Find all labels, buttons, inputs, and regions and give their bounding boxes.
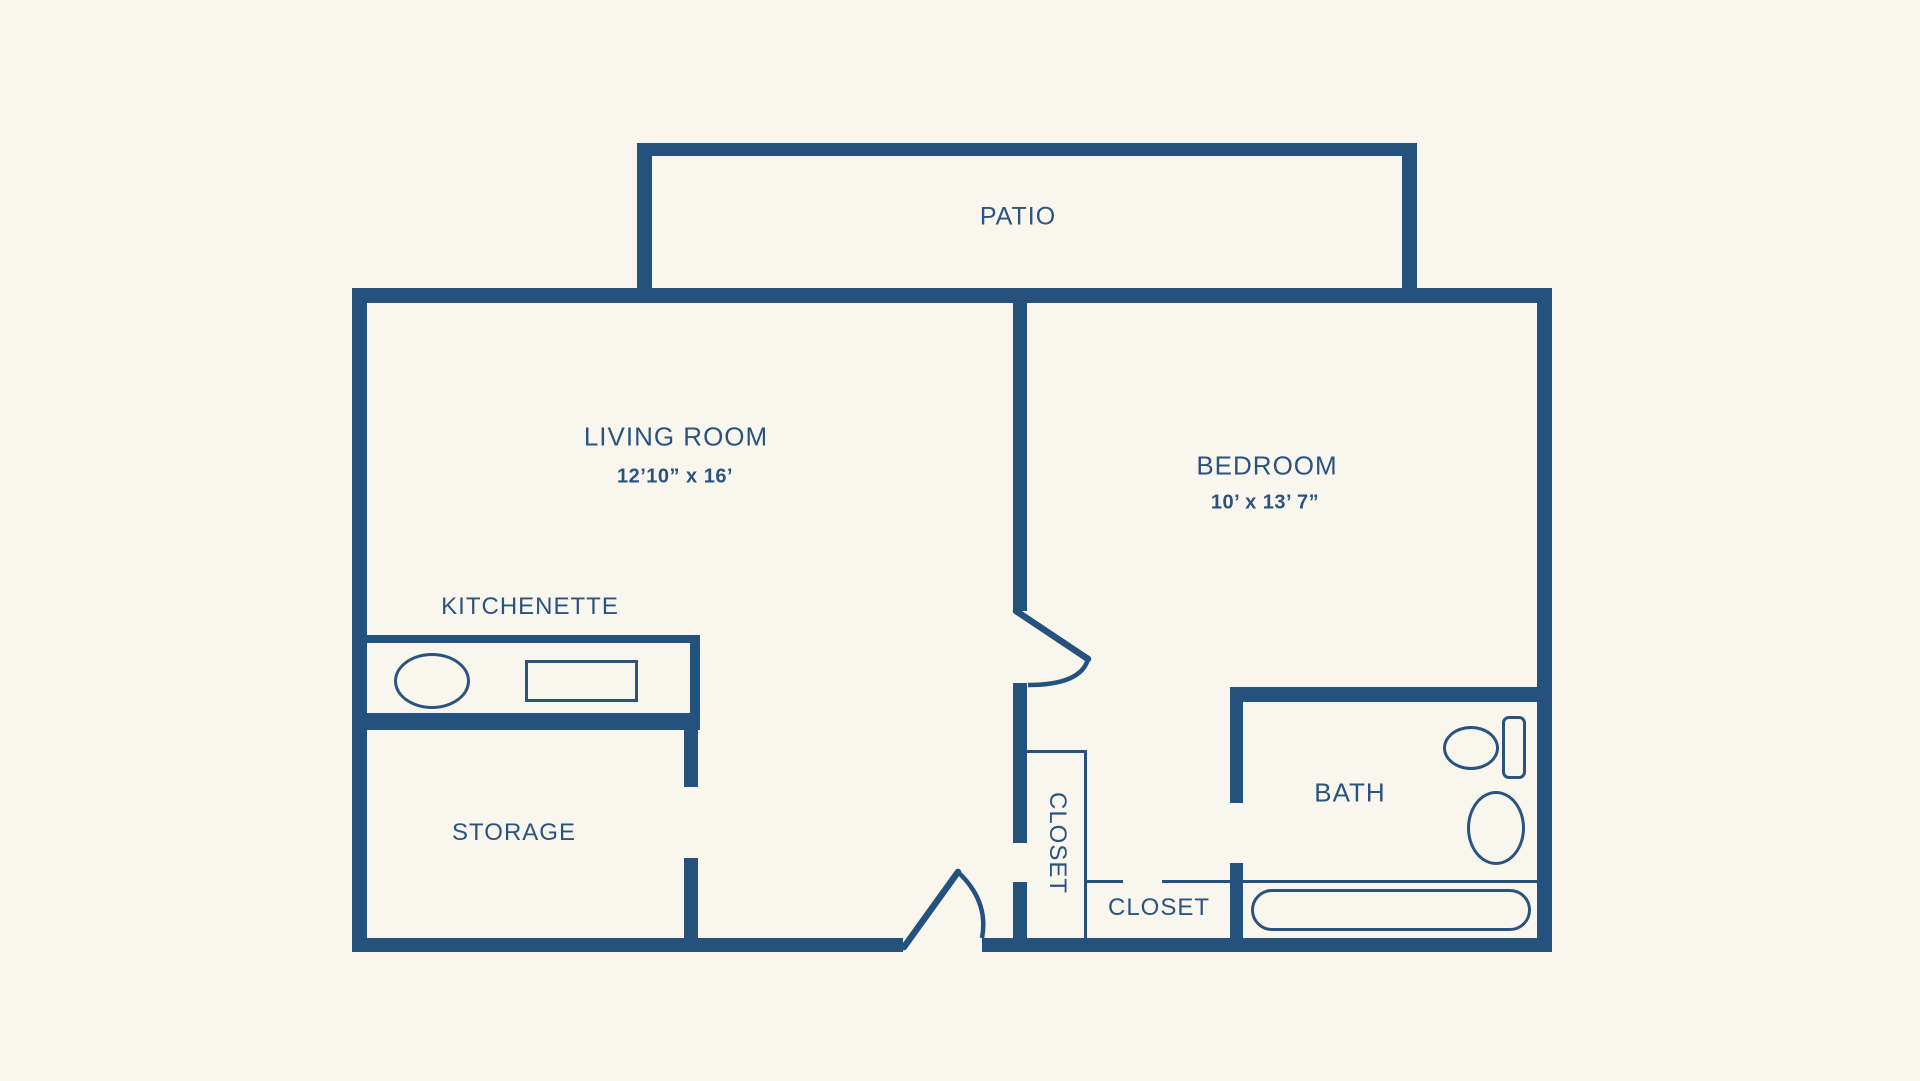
stove-icon (525, 660, 638, 702)
storage-wall-lower (684, 858, 698, 938)
bedroom-label: BEDROOM (1196, 451, 1337, 482)
bedroom-closet-label: CLOSET (1108, 894, 1210, 922)
floor-plan: PATIO LIVING ROOM 12’10” x 16’ BEDROOM 1… (0, 0, 1920, 1081)
center-wall-lower (1013, 882, 1027, 938)
patio-wall-right (1402, 143, 1417, 289)
patio-wall-left (637, 143, 652, 289)
bath-wall-left-upper (1230, 702, 1243, 803)
living-room-label: LIVING ROOM (584, 422, 768, 453)
living-room-dimensions: 12’10” x 16’ (617, 466, 733, 489)
patio-wall-top (637, 143, 1417, 156)
outer-wall-right (1537, 288, 1552, 952)
bedroom-dimensions: 10’ x 13’ 7” (1211, 492, 1319, 515)
bedroom-closet-line-right (1162, 880, 1230, 883)
hall-closet-right-line (1084, 750, 1087, 938)
storage-label: STORAGE (452, 819, 576, 847)
bath-wall-top (1230, 687, 1552, 702)
tub-alcove-line (1243, 880, 1537, 883)
kitchenette-label: KITCHENETTE (441, 593, 619, 621)
outer-wall-top (352, 288, 1552, 303)
hall-closet-top-line (1027, 750, 1087, 753)
bath-wall-left-lower (1230, 863, 1243, 938)
bedroom-door-arc (1028, 659, 1088, 685)
kitchen-storage-wall (352, 713, 700, 730)
bath-label: BATH (1314, 778, 1385, 809)
entry-door-arc (958, 872, 983, 938)
outer-wall-bottom-left-segment (352, 938, 903, 952)
outer-wall-left (352, 288, 367, 952)
outer-wall-bottom-right-segment (982, 938, 1552, 952)
kitchen-counter-top-edge (352, 635, 700, 643)
toilet-tank-icon (1502, 716, 1526, 779)
center-wall-upper (1013, 303, 1027, 611)
patio-label: PATIO (980, 203, 1056, 232)
bedroom-closet-line-left (1087, 880, 1123, 883)
entry-door-leaf (904, 872, 958, 947)
door-swings (0, 0, 1920, 1081)
kitchen-sink-icon (394, 653, 470, 709)
center-wall-middle (1013, 683, 1027, 843)
hall-closet-label: CLOSET (1043, 792, 1071, 894)
bathtub-icon (1251, 889, 1531, 931)
bath-sink-icon (1467, 791, 1525, 865)
storage-wall-upper (684, 730, 698, 787)
bedroom-door-leaf (1016, 611, 1088, 659)
toilet-bowl-icon (1443, 726, 1499, 770)
